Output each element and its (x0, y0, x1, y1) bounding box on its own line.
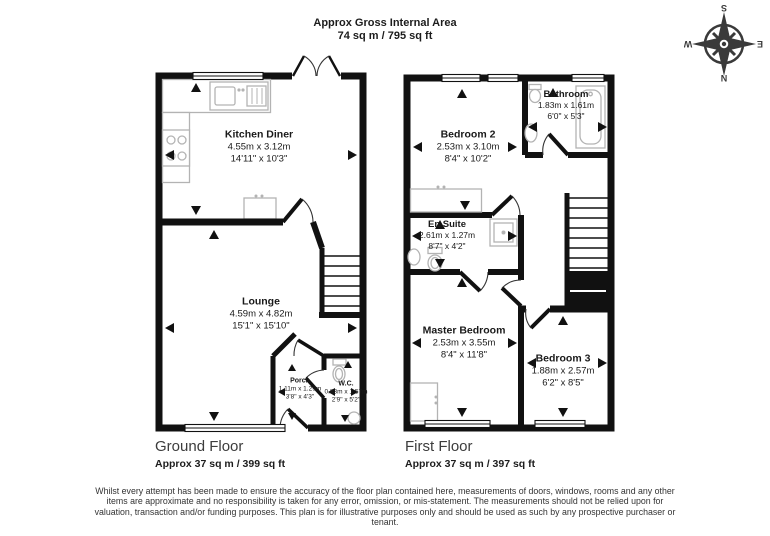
hob-icon (163, 130, 190, 166)
door-leaf (502, 288, 521, 306)
disclaimer-text: Whilst every attempt has been made to en… (92, 486, 678, 528)
page-title: Approx Gross Internal Area 74 sq m / 795… (0, 17, 770, 43)
room-dim-imperial: 3'8" x 4'3" (279, 393, 322, 401)
room-label-en-suite: En Suite 2.61m x 1.27m 8'7" x 4'2" (419, 219, 475, 251)
room-dim-imperial: 14'11" x 10'3" (225, 154, 293, 166)
door-leaf (549, 134, 568, 155)
room-dim-metric: 1.83m x 1.61m (538, 100, 594, 111)
room-label-porch: Porch 1.11m x 1.29m 3'8" x 4'3" (279, 378, 322, 401)
compass-rose-icon: N S W E (684, 4, 764, 84)
compass-north-label: S (721, 4, 727, 13)
door-arc (512, 196, 520, 215)
room-dim-metric: 2.53m x 3.10m (437, 142, 500, 154)
sink-icon (408, 249, 420, 265)
door-arc (302, 199, 313, 222)
room-label-master-bedroom: Master Bedroom 2.53m x 3.55m 8'4" x 11'8… (423, 325, 506, 362)
room-dim-imperial: 6'0" x 5'3" (538, 111, 594, 122)
room-dim-imperial: 8'4" x 11'8" (423, 350, 506, 362)
door-arc (543, 134, 549, 155)
window (425, 421, 490, 428)
room-dim-metric: 1.11m x 1.29m (279, 386, 322, 394)
ground-floor-label: Ground Floor (155, 438, 285, 455)
compass-west-label: E (757, 39, 763, 49)
gross-area-title: Approx Gross Internal Area (0, 17, 770, 30)
room-name: Bathroom (538, 89, 594, 100)
sink-unit-icon (210, 82, 268, 110)
window (442, 75, 480, 82)
sink-icon (348, 412, 360, 424)
window (185, 425, 285, 432)
window (193, 73, 263, 80)
room-name: En Suite (419, 219, 475, 230)
door-arc (502, 280, 521, 288)
door-leaf (531, 309, 550, 328)
first-floor-area: Approx 37 sq m / 397 sq ft (405, 458, 535, 470)
room-dim-imperial: 2'9" x 5'2" (325, 396, 368, 404)
room-label-bedroom-3: Bedroom 3 1.88m x 2.57m 6'2" x 8'5" (532, 353, 595, 390)
door-leaf (492, 196, 512, 215)
wardrobe-icon (411, 186, 482, 213)
room-label-lounge: Lounge 4.59m x 4.82m 15'1" x 15'10" (230, 296, 293, 333)
room-dim-metric: 2.61m x 1.27m (419, 230, 475, 241)
compass-east-label: W (684, 39, 692, 49)
room-dim-metric: 2.53m x 3.55m (423, 338, 506, 350)
room-dim-imperial: 8'4" x 10'2" (437, 154, 500, 166)
door-arc (294, 340, 298, 356)
room-name: Lounge (230, 296, 293, 309)
angled-wall (313, 222, 322, 248)
room-label-bathroom: Bathroom 1.83m x 1.61m 6'0" x 5'3" (538, 89, 594, 121)
room-dim-metric: 0.83m x 1.57m (325, 389, 368, 397)
room-name: Bedroom 2 (437, 129, 500, 142)
first-floor-label: First Floor (405, 438, 535, 455)
room-label-wc: W.C. 0.83m x 1.57m 2'9" x 5'2" (325, 381, 368, 404)
room-name: W.C. (325, 381, 368, 389)
door-leaf (298, 340, 324, 356)
french-doors (292, 56, 341, 80)
ground-floor-caption: Ground Floor Approx 37 sq m / 399 sq ft (155, 438, 285, 470)
door-leaf (283, 199, 302, 222)
room-name: Porch (279, 378, 322, 386)
window (535, 421, 585, 428)
room-name: Bedroom 3 (532, 353, 595, 366)
ground-floor-area: Approx 37 sq m / 399 sq ft (155, 458, 285, 470)
room-dim-metric: 4.55m x 3.12m (225, 142, 293, 154)
room-label-bedroom-2: Bedroom 2 2.53m x 3.10m 8'4" x 10'2" (437, 129, 500, 166)
room-name: Kitchen Diner (225, 129, 293, 142)
window (488, 75, 518, 82)
stairs (565, 193, 612, 312)
window (572, 75, 604, 82)
wardrobe-icon (411, 383, 438, 421)
door-arc (480, 272, 488, 291)
stairs (319, 248, 363, 315)
room-dim-metric: 4.59m x 4.82m (230, 309, 293, 321)
gross-area-value: 74 sq m / 795 sq ft (0, 30, 770, 43)
room-dim-imperial: 6'2" x 8'5" (532, 378, 595, 390)
room-dim-imperial: 15'1" x 15'10" (230, 321, 293, 333)
door-arc (526, 309, 531, 328)
room-name: Master Bedroom (423, 325, 506, 338)
room-dim-imperial: 8'7" x 4'2" (419, 241, 475, 252)
shower-icon (490, 219, 517, 246)
first-floor-caption: First Floor Approx 37 sq m / 397 sq ft (405, 438, 535, 470)
ground-floor-plan (152, 52, 370, 434)
kitchen-unit-icon (244, 195, 276, 220)
compass-south-label: N (721, 73, 728, 83)
room-dim-metric: 1.88m x 2.57m (532, 366, 595, 378)
room-label-kitchen-diner: Kitchen Diner 4.55m x 3.12m 14'11" x 10'… (225, 129, 293, 166)
toilet-icon (333, 359, 346, 382)
